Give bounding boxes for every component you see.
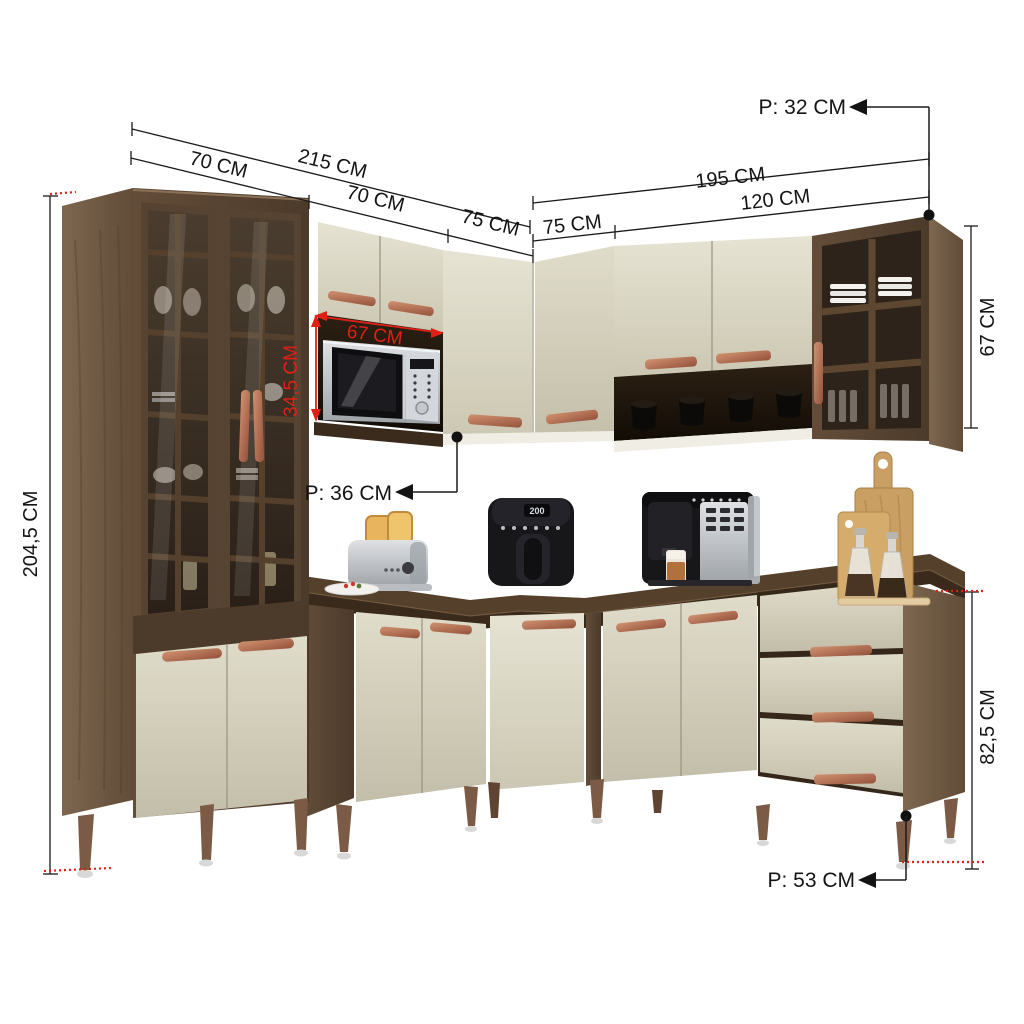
dim-label-left-total: 215 CM [296, 145, 369, 183]
glass-cabinet-side [929, 216, 963, 452]
glass-door-handle [814, 342, 823, 404]
dim-label-left-seg2: 70 CM [344, 181, 406, 216]
arrow-left-icon [395, 484, 413, 500]
dim-label-right-seg1: 75 CM [542, 211, 603, 239]
dim-label-wall-height: 67 CM [977, 298, 999, 357]
dim-label-wall-depth: P: 32 CM [758, 96, 846, 119]
dim-wall-height: 67 CM [964, 226, 999, 428]
air-fryer: 200 [488, 498, 574, 586]
wall-cabinets [314, 216, 963, 452]
drawer-handle [814, 773, 876, 784]
dim-label-base-depth: P: 53 CM [767, 869, 855, 892]
microwave [323, 340, 440, 424]
dim-label-mid-depth: P: 36 CM [304, 482, 392, 505]
callout-dot [452, 432, 463, 443]
dim-label-left-seg3: 75 CM [459, 205, 521, 240]
microwave-knob [416, 402, 428, 414]
callout-dot [924, 210, 935, 221]
base-wood-stile [586, 612, 601, 786]
drawer-handle [812, 711, 874, 722]
dim-label-right-total: 195 CM [694, 163, 766, 193]
pantry-lower-doors [136, 636, 307, 818]
right-wall-doors [614, 236, 812, 377]
door-handle [522, 619, 576, 630]
appliances: 200 [325, 452, 930, 605]
corner-base-cabinet [490, 613, 584, 790]
corner-base-door [490, 613, 584, 790]
left-base-cabinet [303, 604, 486, 818]
cruet-tray [838, 598, 930, 605]
drawer-2 [760, 654, 903, 720]
right-wall-cabinet [614, 236, 812, 377]
water-tank [748, 496, 760, 584]
open-shelf [614, 364, 812, 452]
left-base-doors [356, 612, 486, 802]
pantry-cabinet [62, 188, 309, 878]
dim-label-base-height: 82,5 CM [977, 689, 999, 765]
dim-label-right-seg2: 120 CM [739, 185, 811, 215]
arrow-left-icon [858, 872, 876, 888]
coffee-machine [642, 492, 760, 586]
dim-base-depth: P: 53 CM [767, 811, 911, 893]
toaster-knob [402, 562, 414, 574]
base-side-panel [903, 582, 965, 812]
pantry-glass-door-left [141, 202, 215, 620]
coffee-machine-panel [700, 502, 748, 584]
base-wood-stile [303, 604, 354, 818]
toast-slice [388, 512, 412, 544]
cabinet-legs [336, 779, 958, 870]
air-fryer-display-value: 200 [529, 506, 544, 516]
dim-label-left-seg1: 70 CM [187, 147, 249, 182]
arrow-left-icon [849, 99, 867, 115]
product-dimension-diagram: 200 [0, 0, 1024, 1024]
right-base-cabinet [586, 576, 965, 812]
scene-canvas: 200 [0, 0, 1024, 1024]
corner-wall-cabinet [443, 246, 614, 445]
corner-wall-door-left [443, 250, 532, 443]
dim-label-left-height: 204,5 CM [20, 491, 42, 578]
dim-label-niche-height: 34,5 CM [281, 345, 302, 417]
glass-wall-cabinet [812, 216, 963, 452]
